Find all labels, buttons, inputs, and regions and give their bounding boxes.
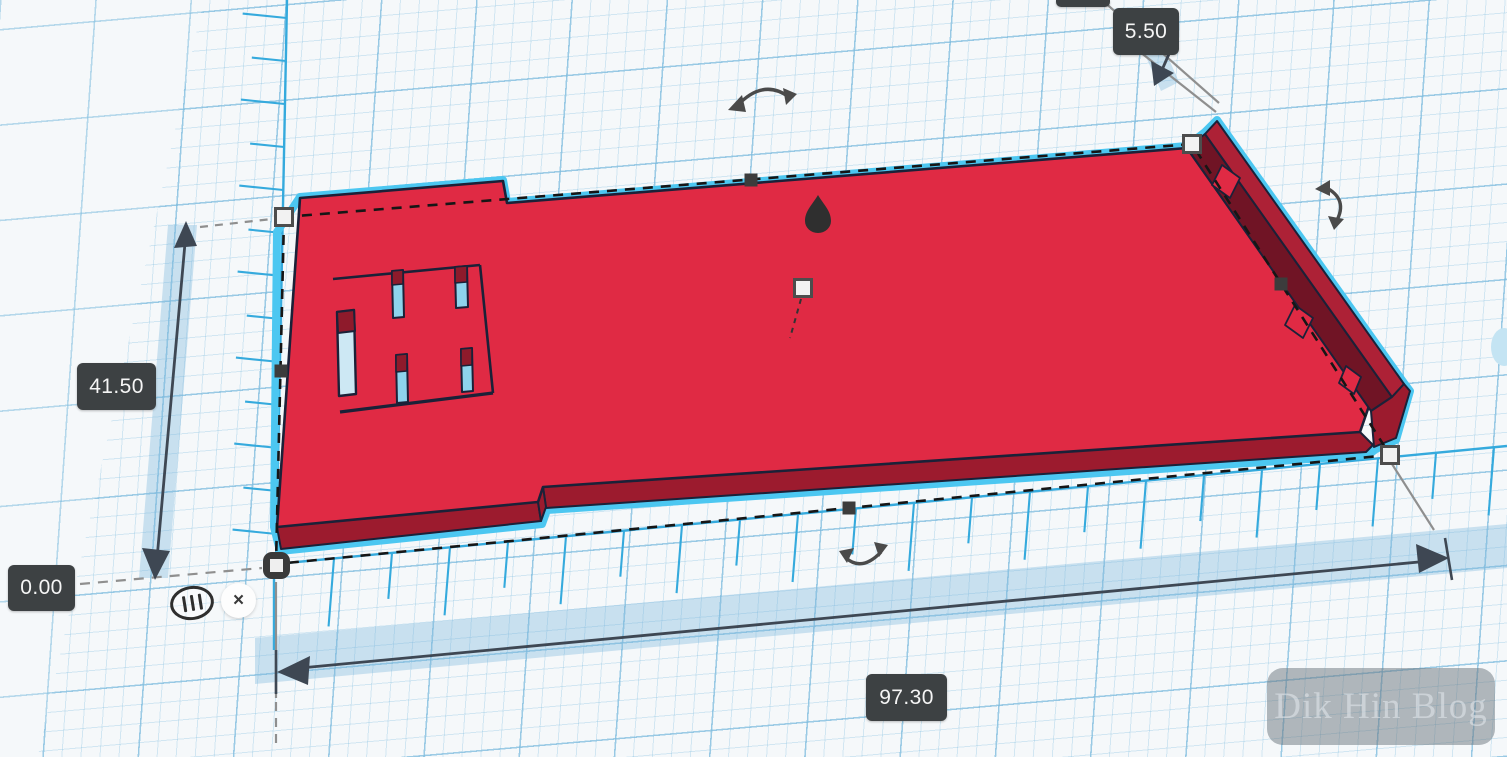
ruler-tick bbox=[252, 58, 286, 61]
ruler-tick bbox=[561, 536, 566, 604]
ruler-bar bbox=[189, 595, 194, 611]
rail-height-value: 5.50 bbox=[1125, 20, 1167, 44]
width-right-extension-line bbox=[1392, 464, 1434, 530]
cad-canvas[interactable]: 41.50 0.00 5.50 97.30 × Dik Hin Blog bbox=[0, 0, 1507, 757]
ruler-tick bbox=[1200, 475, 1204, 521]
ruler-tick bbox=[504, 542, 508, 588]
selected-shape-base-plate[interactable] bbox=[277, 121, 1410, 549]
ruler-tick bbox=[852, 508, 856, 554]
watermark: Dik Hin Blog bbox=[1267, 668, 1495, 745]
width-value: 97.30 bbox=[879, 686, 934, 710]
ruler-tick bbox=[1316, 464, 1320, 510]
ruler-tick bbox=[1373, 458, 1378, 526]
ruler-tick bbox=[233, 530, 277, 534]
elevation-extension-line bbox=[80, 568, 262, 584]
width-dimension-label[interactable]: 97.30 bbox=[866, 674, 947, 721]
scale-edge-handle-top[interactable] bbox=[745, 174, 758, 187]
ruler-tick bbox=[1489, 447, 1494, 515]
elevation-dimension-label[interactable]: 0.00 bbox=[8, 565, 75, 611]
elevation-value: 0.00 bbox=[20, 576, 62, 600]
ruler-tick bbox=[1257, 470, 1262, 538]
ruler-tick bbox=[445, 547, 450, 615]
ruler-tick bbox=[677, 525, 682, 593]
depth-value: 41.50 bbox=[89, 375, 144, 399]
scale-edge-handle-bottom[interactable] bbox=[843, 502, 856, 515]
center-handle[interactable] bbox=[795, 280, 812, 297]
close-icon[interactable]: × bbox=[221, 583, 256, 618]
ruler-tick bbox=[243, 14, 287, 18]
slot-left-cap bbox=[337, 310, 355, 333]
scale-edge-handle-left[interactable] bbox=[275, 365, 288, 378]
ruler-tick bbox=[241, 100, 285, 104]
ruler-bar bbox=[197, 594, 202, 610]
ruler-tick bbox=[1025, 492, 1030, 560]
ruler-tick bbox=[239, 186, 283, 190]
scale-corner-handle-bottom-right[interactable] bbox=[1382, 447, 1399, 464]
offscreen-shape-fragment bbox=[1491, 328, 1507, 366]
rotate-arrow-icon-top[interactable] bbox=[737, 89, 789, 106]
scene-svg bbox=[0, 0, 1507, 757]
scale-edge-handle-right[interactable] bbox=[1275, 278, 1288, 291]
ruler-tick bbox=[793, 514, 798, 582]
depth-top-extension-line bbox=[200, 219, 272, 227]
ruler-tick bbox=[388, 553, 392, 599]
scale-corner-handle-top-right[interactable] bbox=[1184, 136, 1201, 153]
width-dimension-line bbox=[290, 560, 1440, 669]
ruler-tick bbox=[736, 520, 740, 566]
ruler-tick bbox=[1432, 453, 1436, 499]
depth-dimension-label[interactable]: 41.50 bbox=[77, 363, 156, 410]
clipped-dimension-label[interactable] bbox=[1056, 0, 1110, 7]
ruler-tick bbox=[329, 558, 334, 626]
rail-height-dimension-label[interactable]: 5.50 bbox=[1113, 8, 1179, 55]
ruler-tick bbox=[968, 497, 972, 543]
ruler-tick bbox=[620, 531, 624, 577]
close-glyph: × bbox=[233, 590, 244, 612]
watermark-text: Dik Hin Blog bbox=[1274, 685, 1487, 728]
ruler-bar bbox=[181, 596, 186, 612]
scale-corner-handle-top-left[interactable] bbox=[276, 209, 293, 226]
rail-extension-line-b bbox=[1135, 48, 1216, 112]
ruler-tick bbox=[1141, 481, 1146, 549]
ruler-tick bbox=[1084, 486, 1088, 532]
ruler-tick bbox=[250, 144, 284, 147]
ruler-tick bbox=[909, 503, 914, 571]
workplane-anchor-inner bbox=[270, 559, 283, 572]
